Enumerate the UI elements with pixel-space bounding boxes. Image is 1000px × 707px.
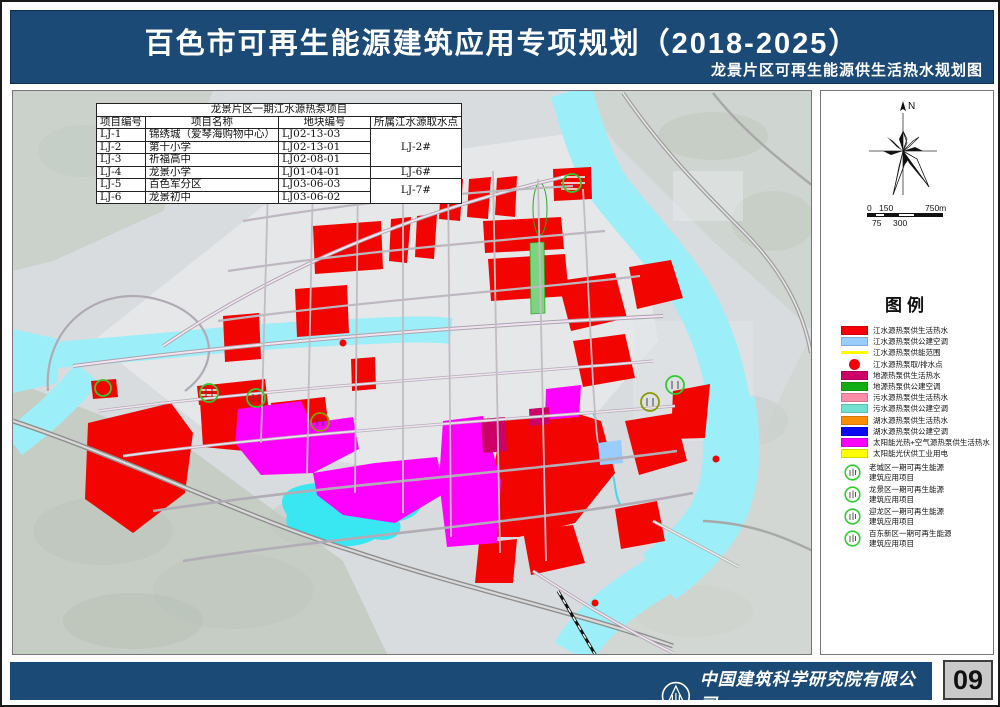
project-area-icon [844, 530, 861, 547]
legend-swatch [841, 371, 868, 380]
legend-swatch [841, 326, 868, 335]
north-arrow-icon: N [863, 97, 943, 201]
map-panel: 龙景片区一期江水源热泵项目 项目编号项目名称地块编号所属江水源取水点 LJ-1锦… [12, 90, 812, 655]
table-header: 所属江水源取水点 [371, 116, 462, 129]
legend-item: 污水源热泵供生活热水 [841, 392, 991, 403]
legend-list: 江水源热泵供生活热水江水源热泵供公建空调江水源热泵供能范围江水源热泵取/排水点地… [841, 325, 991, 459]
company-name-cn: 中国建筑科学研究院有限公司 [700, 665, 932, 707]
legend-title: 图例 [821, 291, 993, 316]
header-bar: 百色市可再生能源建筑应用专项规划（2018-2025） 龙景片区可再生能源供生活… [10, 10, 994, 84]
scale-bar-segments [867, 213, 943, 217]
legend-label: 污水源热泵供生活热水 [873, 392, 948, 403]
table-cell: LJ02-08-01 [279, 154, 371, 167]
legend-item: 江水源热泵供生活热水 [841, 325, 991, 336]
table-row: LJ-1锦绣城（爱琴海购物中心）LJ02-13-03LJ-2# [97, 129, 462, 142]
table-row: LJ-4龙景小学LJ01-04-01LJ-6# [97, 166, 462, 179]
legend-item: 污水源热泵供公建空调 [841, 403, 991, 414]
intake-point-cell: LJ-7# [371, 179, 462, 204]
legend-label: 江水源热泵供公建空调 [873, 336, 948, 347]
table-cell: LJ-4 [97, 166, 146, 179]
legend-icon-item: 百东新区一期可再生能源建筑应用项目 [841, 529, 991, 548]
legend-swatch [841, 393, 868, 402]
table-cell: LJ02-13-03 [279, 129, 371, 142]
legend-item: 江水源热泵供能范围 [841, 347, 991, 358]
legend-icon-label: 迎龙区一期可再生能源建筑应用项目 [869, 507, 944, 526]
table-cell: 祈福高中 [146, 154, 279, 167]
legend-item: 湖水源热泵供公建空调 [841, 426, 991, 437]
scale-label-150: 150 [879, 203, 893, 213]
table-cell: 第十小学 [146, 141, 279, 154]
footer-bar: 中国建筑科学研究院有限公司 China Academy of Building … [10, 662, 932, 700]
legend-swatch [841, 351, 868, 354]
table-cell: 龙景小学 [146, 166, 279, 179]
legend-label: 地源热泵供生活热水 [873, 370, 941, 381]
legend-swatch [841, 382, 868, 391]
legend-item: 地源热泵供公建空调 [841, 381, 991, 392]
legend-swatch [841, 337, 868, 346]
legend-item: 太阳能光热+空气源热泵供生活热水 [841, 437, 991, 448]
project-area-icon [844, 464, 861, 481]
plan-sheet: 百色市可再生能源建筑应用专项规划（2018-2025） 龙景片区可再生能源供生活… [0, 0, 1000, 707]
table-row: LJ-5百色军分区LJ03-06-03LJ-7# [97, 179, 462, 192]
legend-swatch [841, 427, 868, 436]
legend-swatch [841, 404, 868, 413]
scale-label-75: 75 [872, 218, 881, 228]
table-cell: LJ02-13-01 [279, 141, 371, 154]
legend-item: 江水源热泵取/排水点 [841, 359, 991, 370]
legend-project-icons: 老城区一期可再生能源建筑应用项目龙景区一期可再生能源建筑应用项目迎龙区一期可再生… [841, 463, 991, 551]
scale-bar: 0 150 750m 75 300 [867, 203, 977, 228]
intake-point-cell: LJ-2# [371, 129, 462, 167]
table-cell: LJ-2 [97, 141, 146, 154]
table-cell: LJ03-06-02 [279, 191, 371, 204]
project-table-title: 龙景片区一期江水源热泵项目 [97, 104, 462, 117]
legend-label: 地源热泵供公建空调 [873, 381, 941, 392]
table-cell: LJ-3 [97, 154, 146, 167]
legend-swatch [841, 438, 868, 447]
project-area-icon [844, 486, 861, 503]
table-cell: LJ03-06-03 [279, 179, 371, 192]
page-title: 百色市可再生能源建筑应用专项规划（2018-2025） [11, 20, 993, 62]
map-margin-panel: N 0 150 750m [820, 90, 994, 655]
legend-label: 江水源热泵取/排水点 [873, 359, 943, 370]
company-logo-group: 中国建筑科学研究院有限公司 China Academy of Building … [660, 665, 932, 707]
project-table: 龙景片区一期江水源热泵项目 项目编号项目名称地块编号所属江水源取水点 LJ-1锦… [96, 103, 462, 204]
intake-point-cell: LJ-6# [371, 166, 462, 179]
scale-label-750: 750m [925, 203, 946, 213]
legend-label: 江水源热泵供生活热水 [873, 325, 948, 336]
cabr-logo-icon [660, 680, 692, 707]
legend-icon-label: 百东新区一期可再生能源建筑应用项目 [869, 529, 952, 548]
table-cell: LJ01-04-01 [279, 166, 371, 179]
table-header: 项目名称 [146, 116, 279, 129]
legend-label: 污水源热泵供公建空调 [873, 403, 948, 414]
page-number: 09 [943, 660, 993, 700]
legend-icon-item: 迎龙区一期可再生能源建筑应用项目 [841, 507, 991, 526]
table-cell: 锦绣城（爱琴海购物中心） [146, 129, 279, 142]
table-cell: LJ-6 [97, 191, 146, 204]
project-area-icon [844, 508, 861, 525]
scale-label-300: 300 [893, 218, 907, 228]
legend-label: 太阳能光热+空气源热泵供生活热水 [873, 437, 990, 448]
legend-swatch [849, 359, 860, 370]
table-cell: 百色军分区 [146, 179, 279, 192]
legend-item: 地源热泵供生活热水 [841, 370, 991, 381]
legend-swatch [841, 449, 868, 458]
legend-label: 湖水源热泵供公建空调 [873, 426, 948, 437]
svg-text:N: N [908, 101, 915, 112]
legend-item: 太阳能光伏供工业用电 [841, 448, 991, 459]
legend-icon-label: 龙景区一期可再生能源建筑应用项目 [869, 485, 944, 504]
table-header: 项目编号 [97, 116, 146, 129]
table-cell: 龙景初中 [146, 191, 279, 204]
legend-label: 江水源热泵供能范围 [873, 347, 941, 358]
legend-item: 湖水源热泵供生活热水 [841, 415, 991, 426]
legend-item: 江水源热泵供公建空调 [841, 336, 991, 347]
legend-icon-item: 老城区一期可再生能源建筑应用项目 [841, 463, 991, 482]
scale-label-0: 0 [867, 203, 872, 213]
table-cell: LJ-5 [97, 179, 146, 192]
legend-icon-label: 老城区一期可再生能源建筑应用项目 [869, 463, 944, 482]
table-cell: LJ-1 [97, 129, 146, 142]
legend-icon-item: 龙景区一期可再生能源建筑应用项目 [841, 485, 991, 504]
legend-label: 太阳能光伏供工业用电 [873, 448, 948, 459]
legend-swatch [841, 416, 868, 425]
map-subtitle: 龙景片区可再生能源供生活热水规划图 [711, 59, 983, 80]
legend-label: 湖水源热泵供生活热水 [873, 415, 948, 426]
table-header: 地块编号 [279, 116, 371, 129]
